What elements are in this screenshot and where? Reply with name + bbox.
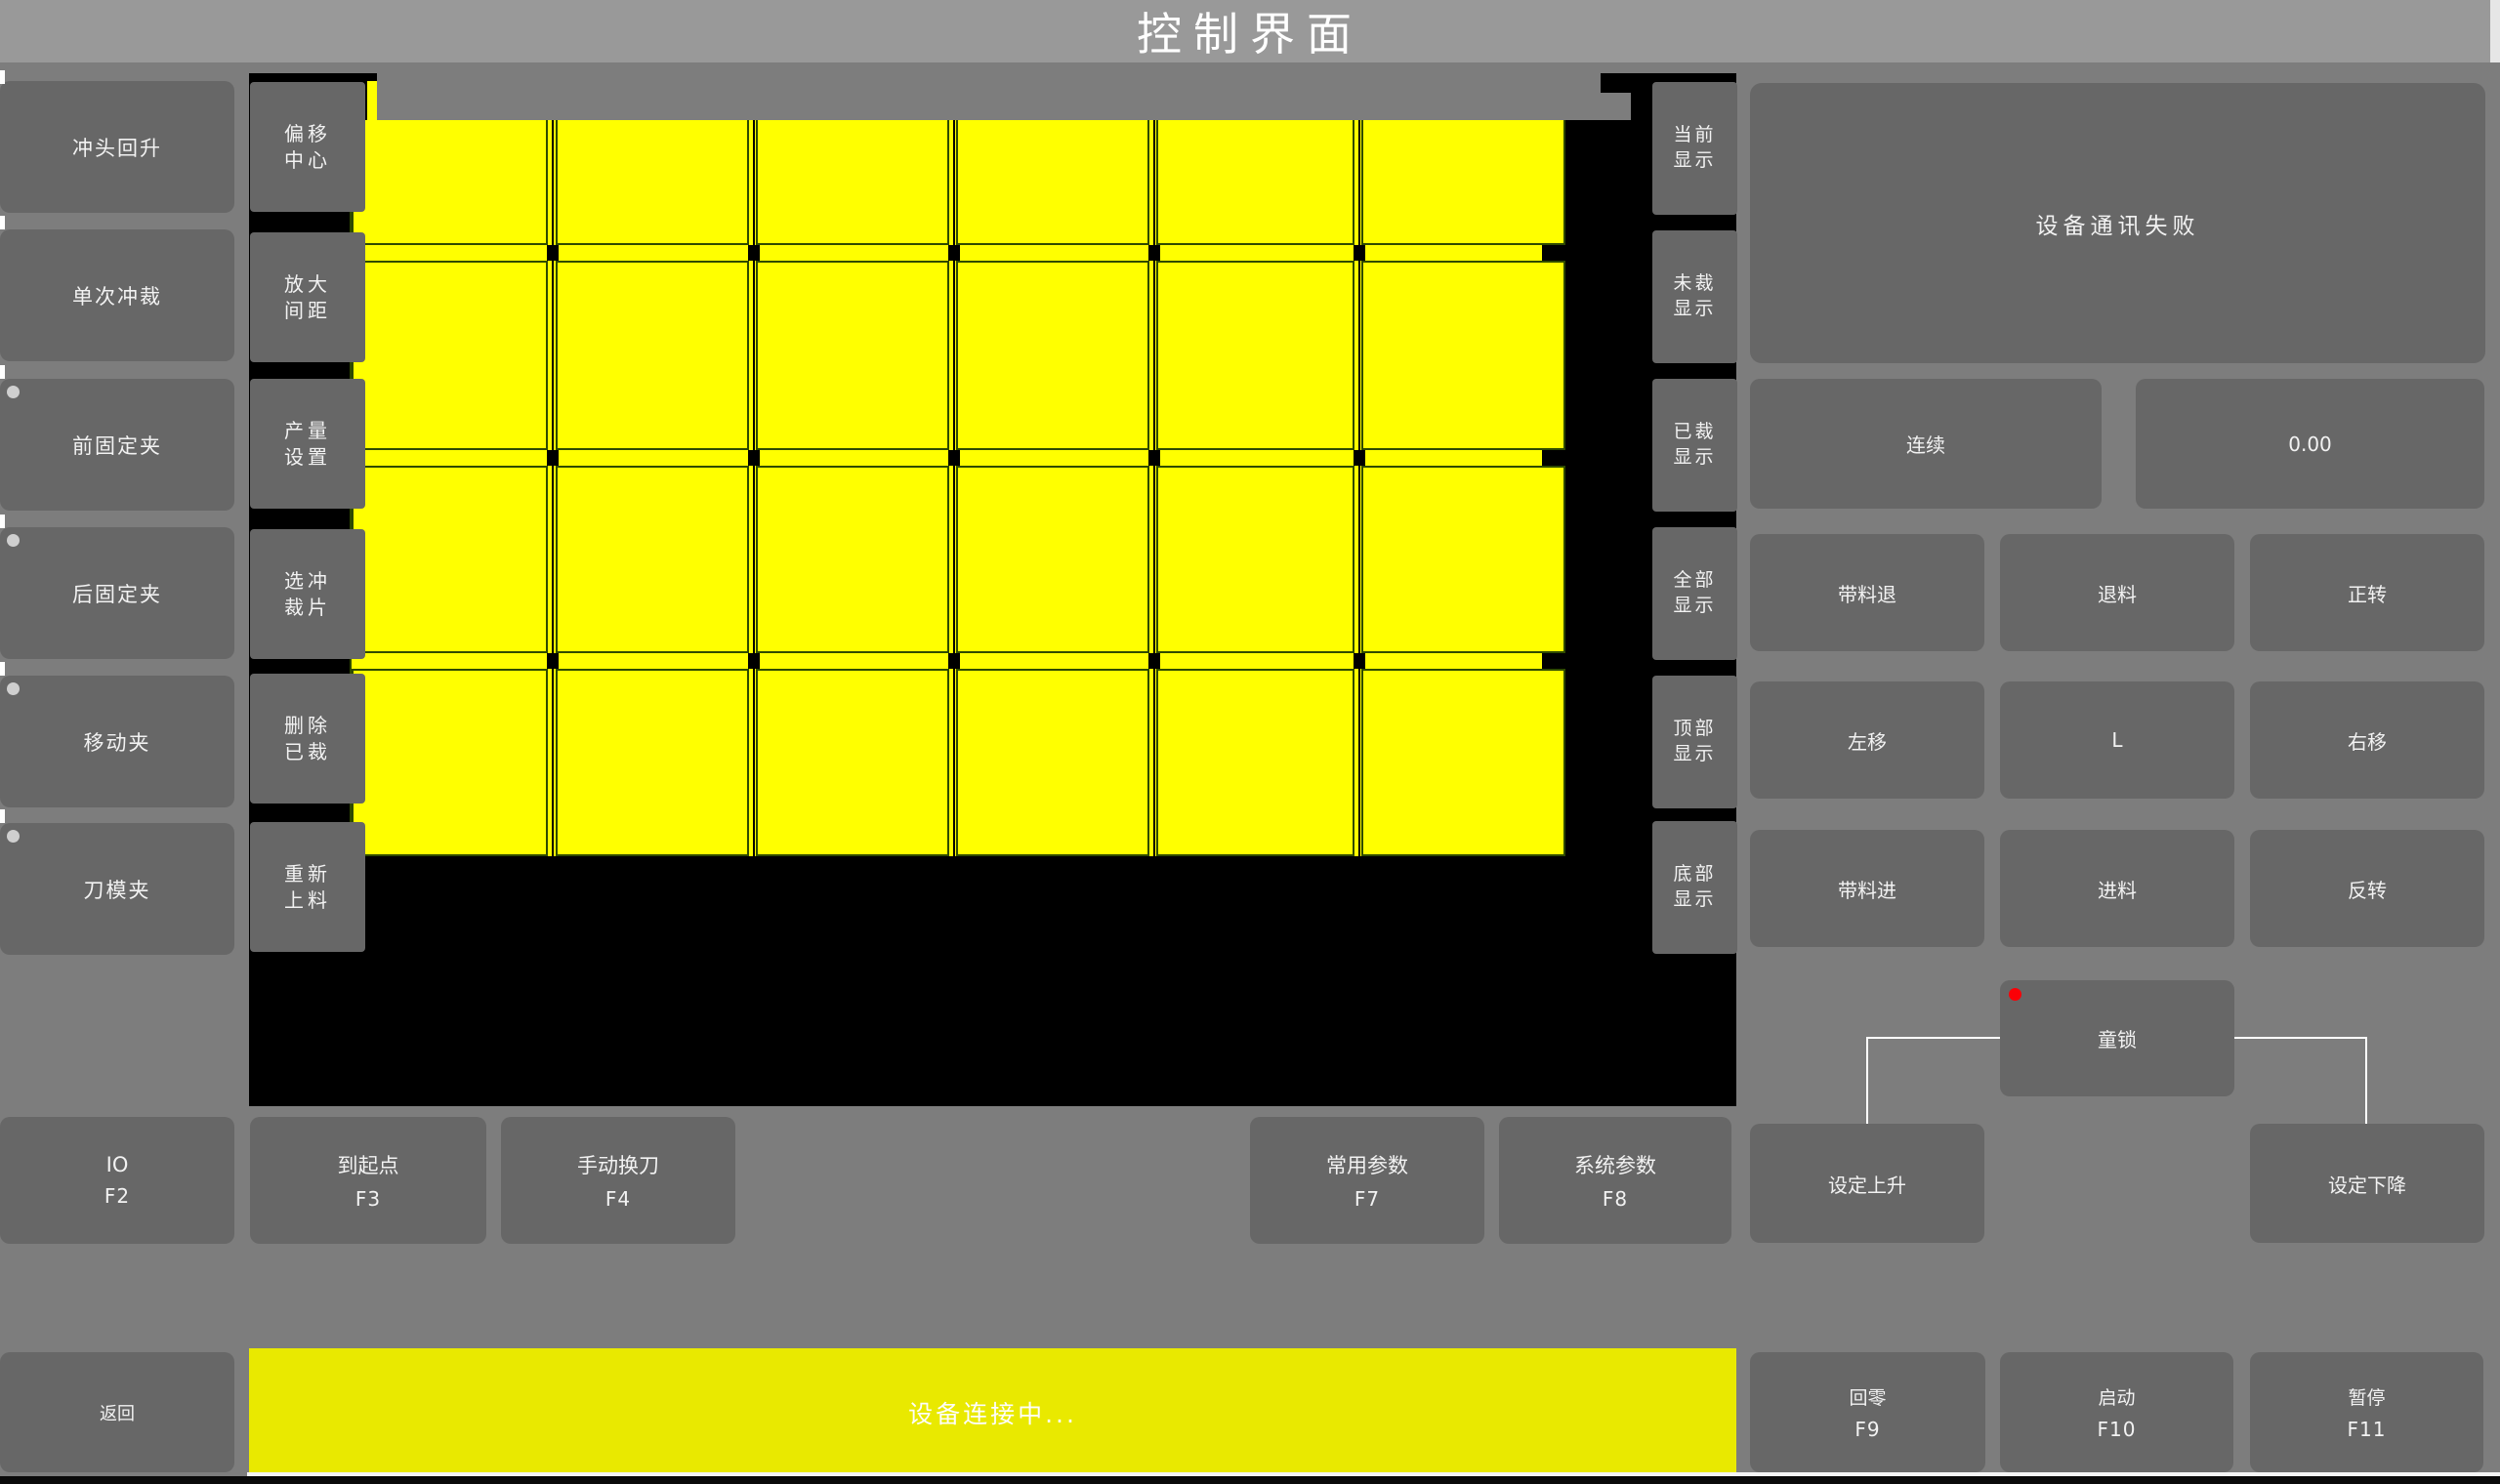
sheet-piece[interactable] bbox=[556, 120, 749, 245]
nesting-canvas bbox=[249, 73, 1736, 1106]
l-button[interactable]: L bbox=[2000, 681, 2234, 799]
feed-button[interactable]: 进料 bbox=[2000, 830, 2234, 947]
system-params-f8-button-key: F8 bbox=[1603, 1187, 1628, 1211]
to-origin-f3-button-key: F3 bbox=[355, 1187, 381, 1211]
row-gap-mark bbox=[948, 245, 960, 261]
page-title: 控制界面 bbox=[1137, 0, 1363, 63]
bottom-display-button-line1: 底部 bbox=[1673, 862, 1716, 887]
select-piece-button-line2: 裁片 bbox=[284, 595, 331, 621]
sheet-piece[interactable] bbox=[1156, 669, 1354, 856]
titlebar-edge-strip bbox=[2490, 0, 2500, 62]
column-separator-line bbox=[1153, 120, 1155, 856]
cut-display-button-line1: 已裁 bbox=[1673, 420, 1716, 445]
clamp-indicator-icon bbox=[7, 386, 20, 398]
left-edge-tick bbox=[0, 515, 5, 528]
unload-button[interactable]: 退料 bbox=[2000, 534, 2234, 651]
clamp-indicator-icon bbox=[7, 682, 20, 695]
to-origin-f3-button-label: 到起点 bbox=[338, 1150, 399, 1179]
row-gap-mark bbox=[948, 450, 960, 466]
common-params-f7-button[interactable]: 常用参数F7 bbox=[1250, 1117, 1484, 1244]
sheet-piece[interactable] bbox=[756, 120, 949, 245]
title-bar: 控制界面 bbox=[0, 0, 2500, 62]
l-button-label: L bbox=[2111, 728, 2122, 752]
continuous-mode-label: 连续 bbox=[1906, 430, 1945, 458]
strip-advance-button[interactable]: 带料进 bbox=[1750, 830, 1984, 947]
home-f9-button[interactable]: 回零F9 bbox=[1750, 1352, 1985, 1472]
reload-material-button-line2: 上料 bbox=[284, 887, 331, 914]
offset-center-button-line1: 偏移 bbox=[284, 121, 331, 147]
bottom-display-button[interactable]: 底部显示 bbox=[1652, 821, 1737, 954]
nesting-sheet bbox=[350, 120, 1563, 856]
die-clamp-button-label: 刀模夹 bbox=[84, 875, 151, 904]
unload-button-label: 退料 bbox=[2098, 579, 2137, 607]
strip-retreat-button[interactable]: 带料退 bbox=[1750, 534, 1984, 651]
start-f10-button-key: F10 bbox=[2098, 1418, 2137, 1441]
enlarge-spacing-button-line2: 间距 bbox=[284, 298, 331, 324]
manual-toolchange-f4-button[interactable]: 手动换刀F4 bbox=[501, 1117, 735, 1244]
canvas-top-strip bbox=[377, 73, 1631, 120]
yield-settings-button-line2: 设置 bbox=[284, 444, 331, 471]
sheet-top-notch bbox=[367, 81, 377, 120]
punch-return-button[interactable]: 冲头回升 bbox=[0, 81, 234, 213]
row-gap-edge-mark bbox=[1542, 245, 1565, 261]
pause-f11-button-key: F11 bbox=[2348, 1418, 2387, 1441]
connection-status-bar: 设备连接中... bbox=[249, 1348, 1736, 1476]
top-display-button-line1: 顶部 bbox=[1673, 717, 1716, 742]
moving-clamp-button-label: 移动夹 bbox=[84, 727, 151, 757]
feed-button-label: 进料 bbox=[2098, 875, 2137, 903]
system-params-f8-button-label: 系统参数 bbox=[1574, 1150, 1656, 1179]
enlarge-spacing-button-line1: 放大 bbox=[284, 271, 331, 298]
row-gap-mark bbox=[748, 450, 760, 466]
uncut-display-button-line1: 未裁 bbox=[1673, 271, 1716, 297]
sheet-piece[interactable] bbox=[352, 466, 548, 653]
yield-settings-button-line1: 产量 bbox=[284, 418, 331, 444]
sheet-piece[interactable] bbox=[956, 120, 1149, 245]
delete-cut-button-line1: 删除 bbox=[284, 713, 331, 739]
moving-clamp-button[interactable]: 移动夹 bbox=[0, 676, 234, 807]
die-clamp-button[interactable]: 刀模夹 bbox=[0, 823, 234, 955]
strip-advance-button-label: 带料进 bbox=[1838, 875, 1896, 903]
set-rise-button[interactable]: 设定上升 bbox=[1750, 1124, 1984, 1243]
comm-status-text: 设备通讯失败 bbox=[2036, 207, 2200, 240]
sheet-piece[interactable] bbox=[556, 669, 749, 856]
strip-retreat-button-label: 带料退 bbox=[1838, 579, 1896, 607]
column-separator-line bbox=[1358, 120, 1360, 856]
left-edge-tick bbox=[0, 365, 5, 379]
manual-toolchange-f4-button-key: F4 bbox=[605, 1187, 631, 1211]
io-f2-button[interactable]: IOF2 bbox=[0, 1117, 234, 1244]
common-params-f7-button-label: 常用参数 bbox=[1326, 1150, 1408, 1179]
single-punch-button[interactable]: 单次冲裁 bbox=[0, 229, 234, 361]
row-gap-mark bbox=[547, 653, 559, 669]
column-separator-line bbox=[753, 120, 755, 856]
yield-settings-button[interactable]: 产量设置 bbox=[250, 379, 365, 509]
reverse-rotate-button[interactable]: 反转 bbox=[2250, 830, 2484, 947]
row-gap-edge-mark bbox=[1542, 653, 1565, 669]
home-f9-button-label: 回零 bbox=[1849, 1383, 1886, 1410]
sheet-piece[interactable] bbox=[756, 466, 949, 653]
row-gap-mark bbox=[1148, 653, 1160, 669]
move-right-button-label: 右移 bbox=[2348, 726, 2387, 755]
back-button[interactable]: 返回 bbox=[0, 1352, 234, 1472]
delete-cut-button-line2: 已裁 bbox=[284, 739, 331, 765]
value-display-text: 0.00 bbox=[2288, 433, 2332, 456]
single-punch-button-label: 单次冲裁 bbox=[72, 281, 162, 310]
rear-clamp-button-label: 后固定夹 bbox=[72, 579, 162, 608]
start-f10-button-label: 启动 bbox=[2098, 1383, 2135, 1410]
home-f9-button-key: F9 bbox=[1854, 1418, 1880, 1441]
sheet-piece[interactable] bbox=[756, 261, 949, 450]
pause-f11-button[interactable]: 暂停F11 bbox=[2250, 1352, 2483, 1472]
all-display-button-line2: 显示 bbox=[1673, 594, 1716, 619]
child-lock-label: 童锁 bbox=[2098, 1024, 2137, 1052]
select-piece-button[interactable]: 选冲裁片 bbox=[250, 529, 365, 659]
set-lower-button[interactable]: 设定下降 bbox=[2250, 1124, 2484, 1243]
value-display: 0.00 bbox=[2136, 379, 2484, 509]
all-display-button[interactable]: 全部显示 bbox=[1652, 527, 1737, 660]
sheet-piece[interactable] bbox=[1361, 466, 1565, 653]
manual-toolchange-f4-button-label: 手动换刀 bbox=[577, 1150, 659, 1179]
offset-center-button-line2: 中心 bbox=[284, 147, 331, 174]
uncut-display-button[interactable]: 未裁显示 bbox=[1652, 230, 1737, 363]
row-gap-mark bbox=[547, 450, 559, 466]
delete-cut-button[interactable]: 删除已裁 bbox=[250, 674, 365, 804]
select-piece-button-line1: 选冲 bbox=[284, 568, 331, 595]
left-edge-tick bbox=[0, 70, 5, 84]
punch-return-button-label: 冲头回升 bbox=[72, 133, 162, 162]
offset-center-button[interactable]: 偏移中心 bbox=[250, 82, 365, 212]
front-clamp-button-label: 前固定夹 bbox=[72, 431, 162, 460]
row-gap-mark bbox=[1148, 245, 1160, 261]
common-params-f7-button-key: F7 bbox=[1354, 1187, 1380, 1211]
system-params-f8-button[interactable]: 系统参数F8 bbox=[1499, 1117, 1731, 1244]
row-gap-mark bbox=[948, 653, 960, 669]
forward-rotate-button-label: 正转 bbox=[2348, 579, 2387, 607]
back-button-label: 返回 bbox=[100, 1400, 135, 1425]
move-right-button[interactable]: 右移 bbox=[2250, 681, 2484, 799]
row-gap-edge-mark bbox=[1542, 450, 1565, 466]
sheet-piece[interactable] bbox=[556, 261, 749, 450]
sheet-piece[interactable] bbox=[352, 120, 548, 245]
sheet-piece[interactable] bbox=[352, 261, 548, 450]
row-gap-mark bbox=[748, 653, 760, 669]
row-gap-mark bbox=[1148, 450, 1160, 466]
reload-material-button[interactable]: 重新上料 bbox=[250, 822, 365, 952]
current-display-button[interactable]: 当前显示 bbox=[1652, 82, 1737, 215]
cut-display-button[interactable]: 已裁显示 bbox=[1652, 379, 1737, 512]
enlarge-spacing-button[interactable]: 放大间距 bbox=[250, 232, 365, 362]
top-display-button[interactable]: 顶部显示 bbox=[1652, 676, 1737, 808]
to-origin-f3-button[interactable]: 到起点F3 bbox=[250, 1117, 486, 1244]
sheet-piece[interactable] bbox=[956, 466, 1149, 653]
comm-status-panel: 设备通讯失败 bbox=[1750, 83, 2485, 363]
set-lower-label: 设定下降 bbox=[2328, 1170, 2406, 1198]
sheet-piece[interactable] bbox=[956, 669, 1149, 856]
row-gap-mark bbox=[1354, 245, 1365, 261]
column-separator-line bbox=[552, 120, 554, 856]
uncut-display-button-line2: 显示 bbox=[1673, 297, 1716, 322]
sheet-piece[interactable] bbox=[556, 466, 749, 653]
sheet-piece[interactable] bbox=[1156, 466, 1354, 653]
rear-clamp-button[interactable]: 后固定夹 bbox=[0, 527, 234, 659]
set-rise-label: 设定上升 bbox=[1828, 1170, 1906, 1198]
row-gap-mark bbox=[547, 245, 559, 261]
io-f2-button-key: F2 bbox=[104, 1184, 130, 1208]
sheet-piece[interactable] bbox=[1361, 261, 1565, 450]
continuous-mode-button[interactable]: 连续 bbox=[1750, 379, 2102, 509]
top-display-button-line2: 显示 bbox=[1673, 742, 1716, 767]
sheet-piece[interactable] bbox=[1156, 120, 1354, 245]
clamp-indicator-icon bbox=[7, 534, 20, 547]
left-edge-tick bbox=[0, 662, 5, 676]
io-f2-button-label: IO bbox=[106, 1153, 129, 1176]
sheet-piece[interactable] bbox=[1361, 669, 1565, 856]
row-gap-mark bbox=[1354, 653, 1365, 669]
sheet-piece[interactable] bbox=[1156, 261, 1354, 450]
left-edge-tick bbox=[0, 216, 5, 229]
control-screen: 控制界面 冲头回升单次冲裁前固定夹后固定夹移动夹刀模夹 偏移中心放大间距产量设置… bbox=[0, 0, 2500, 1484]
connection-status-text: 设备连接中... bbox=[908, 1395, 1077, 1430]
child-lock-button[interactable]: 童锁 bbox=[2000, 980, 2234, 1096]
move-left-button-label: 左移 bbox=[1848, 726, 1887, 755]
forward-rotate-button[interactable]: 正转 bbox=[2250, 534, 2484, 651]
sheet-piece[interactable] bbox=[756, 669, 949, 856]
sheet-piece[interactable] bbox=[956, 261, 1149, 450]
cut-display-button-line2: 显示 bbox=[1673, 445, 1716, 471]
canvas-top-right-notch bbox=[1601, 73, 1632, 93]
row-gap-mark bbox=[748, 245, 760, 261]
bottom-black-strip bbox=[0, 1476, 2500, 1484]
move-left-button[interactable]: 左移 bbox=[1750, 681, 1984, 799]
all-display-button-line1: 全部 bbox=[1673, 568, 1716, 594]
bottom-display-button-line2: 显示 bbox=[1673, 887, 1716, 913]
row-gap-mark bbox=[1354, 450, 1365, 466]
current-display-button-line1: 当前 bbox=[1673, 123, 1716, 148]
child-lock-indicator-icon bbox=[2009, 988, 2021, 1001]
front-clamp-button[interactable]: 前固定夹 bbox=[0, 379, 234, 511]
start-f10-button[interactable]: 启动F10 bbox=[2000, 1352, 2233, 1472]
sheet-piece[interactable] bbox=[1361, 120, 1565, 245]
current-display-button-line2: 显示 bbox=[1673, 148, 1716, 174]
sheet-piece[interactable] bbox=[352, 669, 548, 856]
reverse-rotate-button-label: 反转 bbox=[2348, 875, 2387, 903]
pause-f11-button-label: 暂停 bbox=[2348, 1383, 2385, 1410]
clamp-indicator-icon bbox=[7, 830, 20, 843]
left-edge-tick bbox=[0, 809, 5, 823]
reload-material-button-line1: 重新 bbox=[284, 861, 331, 887]
column-separator-line bbox=[953, 120, 955, 856]
